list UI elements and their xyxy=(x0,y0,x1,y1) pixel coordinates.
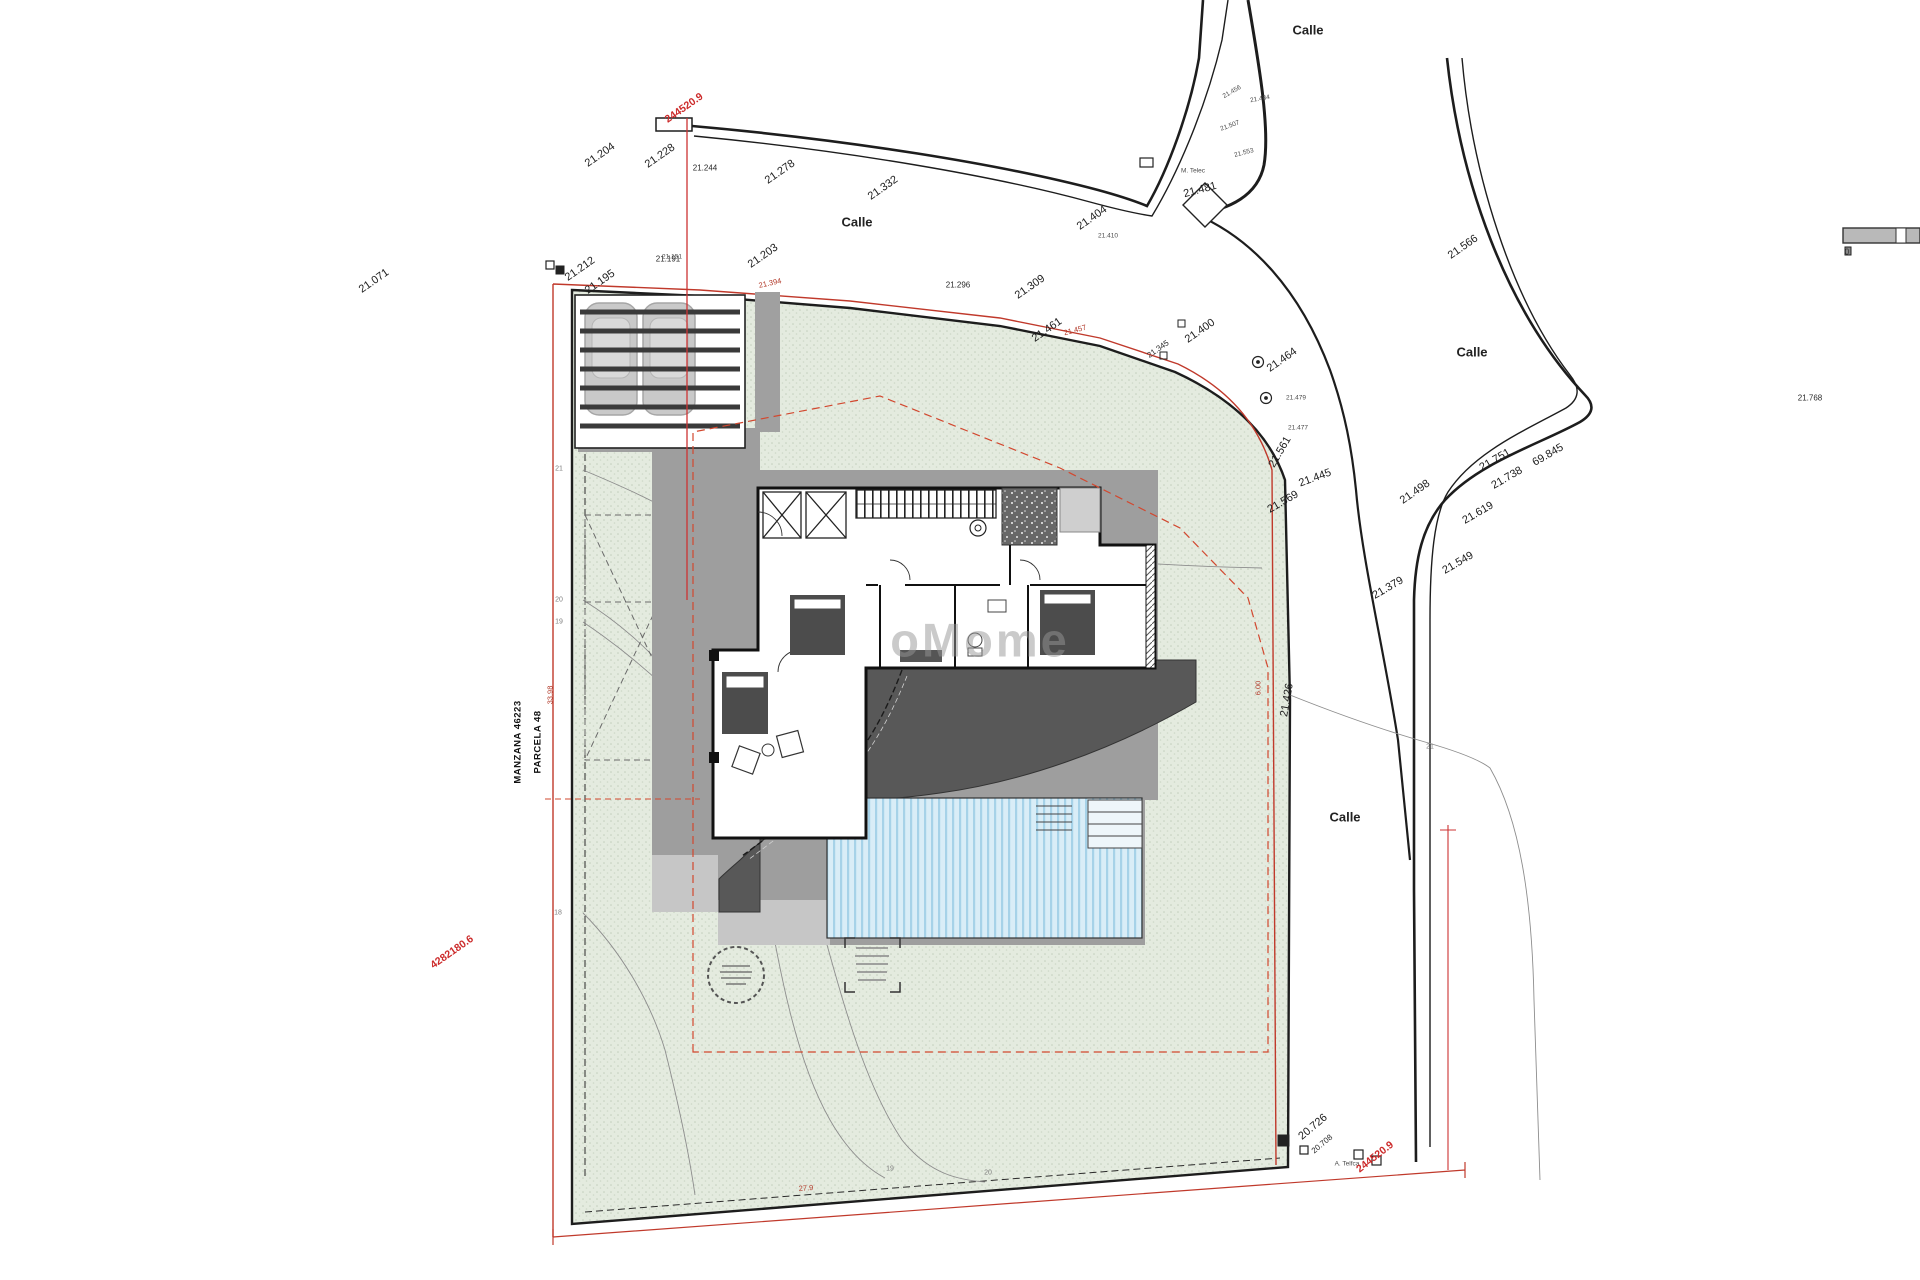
right-road-east-edge xyxy=(1430,58,1577,1147)
carport xyxy=(575,295,745,448)
parcel-block-label: MANZANA 46223 xyxy=(513,700,524,783)
intersection-curb xyxy=(1195,0,1266,214)
watermark: oMome xyxy=(890,613,1070,668)
pool-steps xyxy=(1088,800,1142,848)
light-terrace-square xyxy=(1060,488,1100,532)
gravel-patio xyxy=(1002,488,1057,545)
pergola-slats xyxy=(580,312,740,426)
pool xyxy=(827,798,1142,938)
top-road-far-edge xyxy=(692,0,1203,206)
car-1 xyxy=(585,303,637,415)
right-road-west-edge xyxy=(1414,58,1591,1162)
scale-bar xyxy=(1843,228,1920,255)
site-plan-page: CalleCalleCalleCalle21.07121.20421.22821… xyxy=(0,0,1920,1280)
diamond-manhole xyxy=(1183,183,1227,227)
scale-bar-zero: 0 xyxy=(1845,248,1849,257)
utility-box xyxy=(1278,1135,1289,1146)
parcel-plot-label: PARCELA 48 xyxy=(533,710,544,773)
top-road-second-edge xyxy=(694,0,1228,216)
